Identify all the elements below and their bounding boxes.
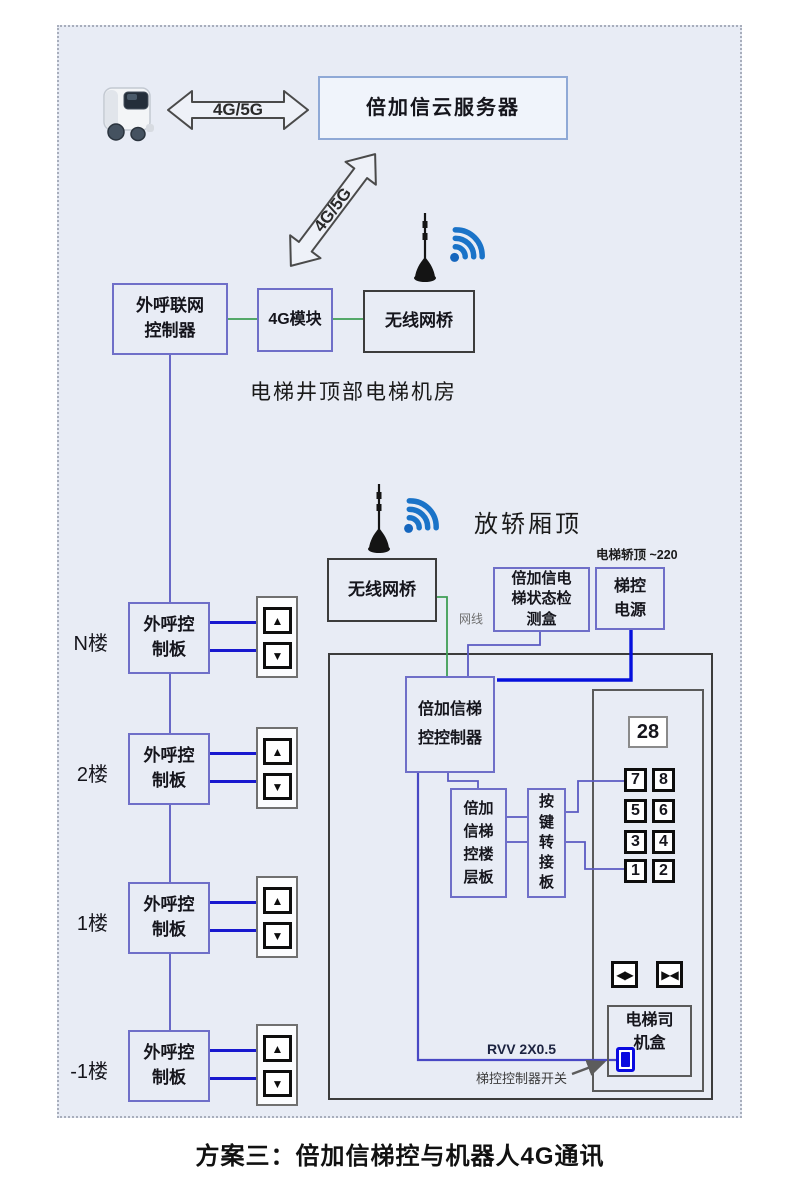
call-down-button[interactable]: ▼ xyxy=(263,1070,292,1097)
network-cable-label: 网线 xyxy=(459,610,483,627)
hall-button-panel: ▲ ▼ xyxy=(256,876,298,958)
hall-button-panel: ▲ ▼ xyxy=(256,727,298,809)
cabin-floor-button[interactable]: 3 xyxy=(624,830,647,854)
call-up-button[interactable]: ▲ xyxy=(263,738,292,765)
door-open-button[interactable]: ◀▶ xyxy=(611,961,638,988)
floor-indicator-display: 28 xyxy=(628,716,668,748)
hall-call-board-box: 外呼控 制板 xyxy=(128,882,210,954)
call-down-button[interactable]: ▼ xyxy=(263,773,292,800)
call-wire xyxy=(210,929,256,932)
call-up-button[interactable]: ▲ xyxy=(263,1035,292,1062)
hall-call-board-box: 外呼控 制板 xyxy=(128,602,210,674)
outcall-network-controller-box: 外呼联网 控制器 xyxy=(112,283,228,355)
key-adapter-board-box: 按 键 转 接 板 xyxy=(527,788,566,898)
hall-button-panel: ▲ ▼ xyxy=(256,596,298,678)
cabin-floor-button[interactable]: 6 xyxy=(652,799,675,823)
door-close-button[interactable]: ▶◀ xyxy=(656,961,683,988)
cabin-floor-button[interactable]: 2 xyxy=(652,859,675,883)
hall-button-panel: ▲ ▼ xyxy=(256,1024,298,1106)
controller-switch-label: 梯控控制器开关 xyxy=(476,1068,567,1087)
cabin-floor-button[interactable]: 8 xyxy=(652,768,675,792)
cabin-floor-button[interactable]: 1 xyxy=(624,859,647,883)
call-up-button[interactable]: ▲ xyxy=(263,607,292,634)
floor-board-box: 倍加 信梯 控楼 层板 xyxy=(450,788,507,898)
diagram-canvas: 4G/5G 倍加信云服务器 4G/5G 外呼联网 控制器 4G模块 无线网桥 电… xyxy=(0,0,800,1193)
floor-label: N楼 xyxy=(60,627,108,656)
wireless-bridge-box-machine-room: 无线网桥 xyxy=(363,290,475,353)
call-down-button[interactable]: ▼ xyxy=(263,922,292,949)
hall-call-board-box: 外呼控 制板 xyxy=(128,733,210,805)
module-4g-box: 4G模块 xyxy=(257,288,333,352)
call-wire xyxy=(210,1049,256,1052)
floor-row: N楼 外呼控 制板 ▲ ▼ xyxy=(60,596,310,680)
wifi-antenna-icon-machine-room xyxy=(409,209,487,291)
controller-switch[interactable] xyxy=(616,1047,635,1072)
robot-icon xyxy=(100,80,156,142)
cabin-floor-button[interactable]: 5 xyxy=(624,799,647,823)
link-arrow-label: 4G/5G xyxy=(166,100,310,120)
call-wire xyxy=(210,649,256,652)
call-up-button[interactable]: ▲ xyxy=(263,887,292,914)
hall-call-board-box: 外呼控 制板 xyxy=(128,1030,210,1102)
floor-row: 1楼 外呼控 制板 ▲ ▼ xyxy=(60,876,310,960)
elevator-status-detection-box: 倍加信电 梯状态检 测盒 xyxy=(493,567,590,632)
link-arrow-robot-cloud: 4G/5G xyxy=(166,86,310,134)
page-title: 方案三：倍加信梯控与机器人4G通讯 xyxy=(0,1136,800,1171)
power-note: 电梯轿顶 ~220 xyxy=(596,544,678,563)
car-top-caption: 放轿厢顶 xyxy=(474,504,582,539)
wifi-antenna-icon-car-top xyxy=(363,480,441,562)
cabin-floor-button[interactable]: 4 xyxy=(652,830,675,854)
floor-label: -1楼 xyxy=(60,1055,108,1084)
call-wire xyxy=(210,780,256,783)
elevator-control-power-box: 梯控 电源 xyxy=(595,567,665,630)
floor-row: -1楼 外呼控 制板 ▲ ▼ xyxy=(60,1024,310,1108)
floor-label: 2楼 xyxy=(60,758,108,787)
elevator-control-controller-box: 倍加信梯 控控制器 xyxy=(405,676,495,773)
call-wire xyxy=(210,1077,256,1080)
call-wire xyxy=(210,752,256,755)
cloud-server-label: 倍加信云服务器 xyxy=(366,94,520,123)
rvv-cable-label: RVV 2X0.5 xyxy=(487,1041,556,1057)
call-wire xyxy=(210,621,256,624)
wireless-bridge-box-car-top: 无线网桥 xyxy=(327,558,437,622)
cabin-floor-button[interactable]: 7 xyxy=(624,768,647,792)
floor-row: 2楼 外呼控 制板 ▲ ▼ xyxy=(60,727,310,811)
floor-label: 1楼 xyxy=(60,907,108,936)
call-down-button[interactable]: ▼ xyxy=(263,642,292,669)
call-wire xyxy=(210,901,256,904)
cloud-server-box: 倍加信云服务器 xyxy=(318,76,568,140)
machine-room-caption: 电梯井顶部电梯机房 xyxy=(250,376,457,406)
